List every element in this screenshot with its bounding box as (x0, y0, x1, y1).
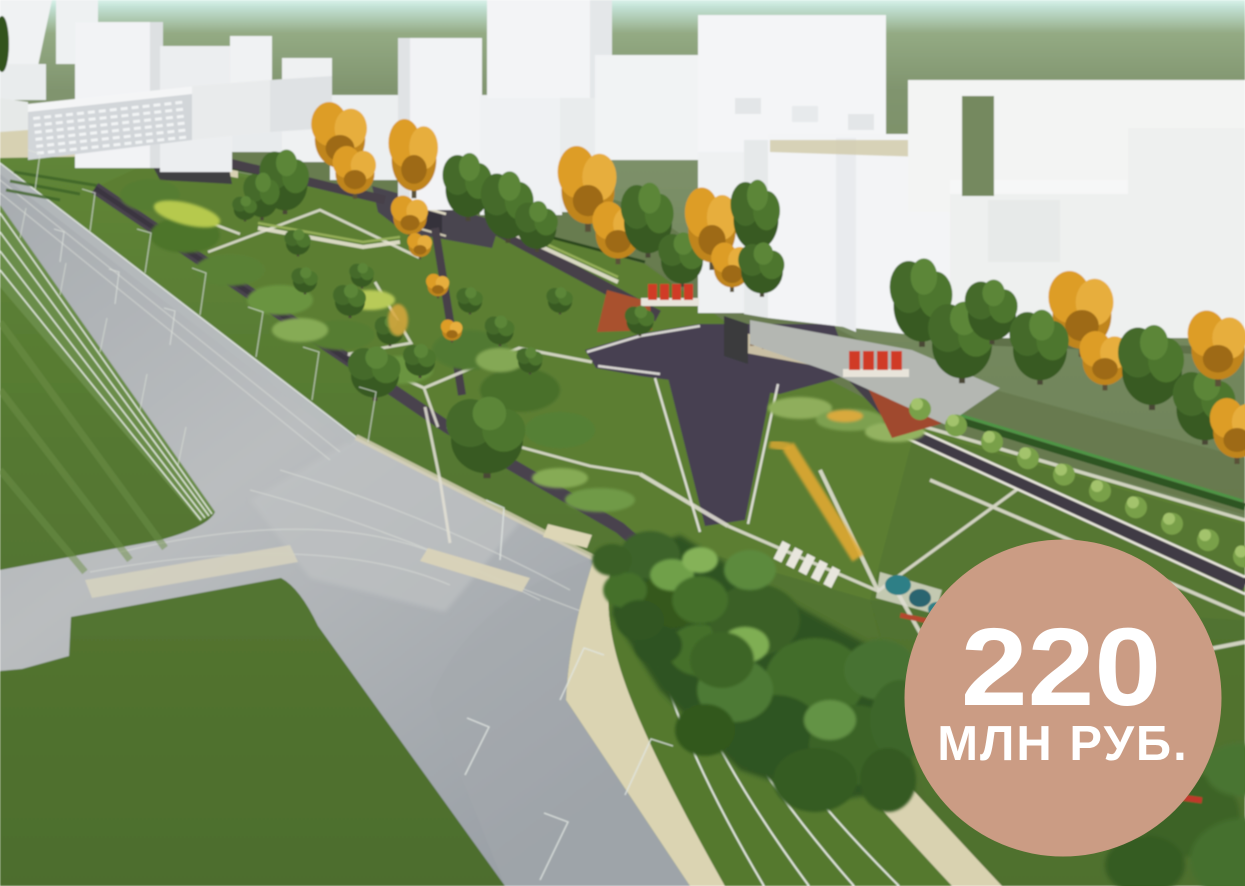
svg-text:МЛН РУБ.: МЛН РУБ. (937, 717, 1189, 771)
svg-text:220: 220 (961, 606, 1161, 729)
